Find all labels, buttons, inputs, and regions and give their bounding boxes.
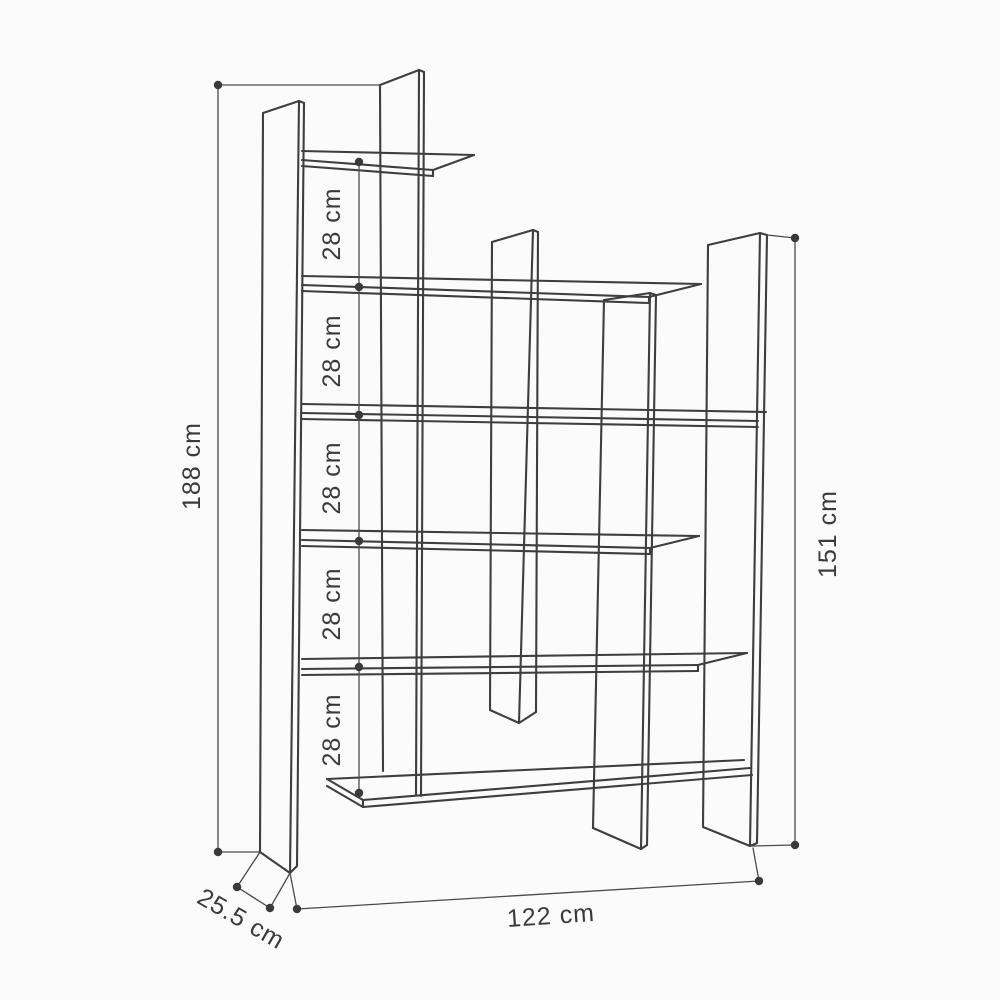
shelf-3 [302, 404, 766, 427]
label-gap-5: 28 cm [318, 693, 346, 766]
panel-right-side [703, 233, 767, 846]
dimension-endpoint-dot [233, 883, 241, 891]
panel-edge [490, 710, 519, 723]
panel-edge [536, 232, 538, 712]
panel-edge [380, 70, 419, 85]
label-gap-1: 28 cm [318, 187, 346, 260]
dimension-endpoint-dot [355, 283, 363, 291]
dim-extension [752, 845, 795, 846]
dim-total-height: 188 cm [178, 81, 380, 856]
shelf-edge [302, 404, 766, 412]
dimension-endpoint-dot [755, 877, 763, 885]
dim-width: 122 cm [290, 848, 763, 933]
panel-edge [421, 72, 424, 796]
dim-shelf-gaps: 28 cm 28 cm 28 cm 28 cm 28 cm [318, 158, 363, 797]
panel-edge [593, 300, 604, 828]
panel-edge [492, 230, 533, 242]
dimension-endpoint-dot [293, 905, 301, 913]
panel-edge [519, 230, 533, 723]
panel-left-side [260, 101, 304, 873]
panel-edge [708, 233, 760, 245]
panel-edge [263, 101, 299, 113]
panel-middle-divider [490, 230, 538, 723]
shelf-edge [302, 151, 474, 155]
panel-edge [703, 827, 750, 846]
shelf-edge [302, 671, 698, 675]
panel-edge [260, 852, 290, 873]
panel-edge [519, 712, 536, 723]
dimension-endpoint-dot [791, 841, 799, 849]
panel-edge [260, 113, 263, 852]
dim-depth: 25.5 cm [192, 852, 290, 955]
label-total-height: 188 cm [178, 422, 206, 510]
shelf-edge [650, 536, 699, 548]
shelf-edge [649, 284, 701, 297]
panel-edge [416, 70, 419, 794]
dim-extension [237, 852, 260, 887]
label-gap-3: 28 cm [318, 441, 346, 514]
dimension-endpoint-dot [355, 537, 363, 545]
shelf-edge [433, 155, 474, 170]
shelf-bottom [327, 760, 752, 807]
panel-edge [760, 233, 767, 235]
panel-edge [490, 242, 492, 710]
dimension-endpoint-dot [214, 81, 222, 89]
panel-edge [703, 245, 708, 827]
bookcase-dimension-diagram: 188 cm 28 cm 28 cm 28 cm 28 cm 28 cm 151… [0, 0, 1000, 1000]
shelf-edge [302, 285, 649, 297]
shelf-top [302, 151, 474, 176]
dimension-endpoint-dot [355, 158, 363, 166]
shelf-edge [302, 653, 747, 659]
shelf-edge [302, 291, 649, 303]
dimension-endpoint-dot [791, 234, 799, 242]
dimension-endpoint-dot [214, 848, 222, 856]
dim-extension [767, 235, 795, 238]
dim-extension [753, 848, 759, 881]
dimension-endpoint-dot [355, 663, 363, 671]
dimension-endpoint-dot [266, 904, 274, 912]
dimension-endpoint-dot [355, 411, 363, 419]
dim-extension [290, 873, 297, 909]
label-right-height: 151 cm [814, 490, 842, 578]
shelf-edge [327, 760, 744, 779]
dimension-endpoint-dot [355, 789, 363, 797]
panel-second-tall [380, 70, 424, 796]
shelf-5 [302, 653, 747, 675]
label-depth: 25.5 cm [192, 883, 289, 955]
panel-edge [593, 828, 641, 849]
dim-extension [270, 873, 290, 908]
label-width: 122 cm [506, 899, 596, 933]
diagram-svg: 188 cm 28 cm 28 cm 28 cm 28 cm 28 cm 151… [0, 0, 1000, 1000]
label-gap-2: 28 cm [318, 314, 346, 387]
label-gap-4: 28 cm [318, 567, 346, 640]
shelf-edge [302, 530, 699, 536]
shelf-edge [302, 276, 701, 284]
